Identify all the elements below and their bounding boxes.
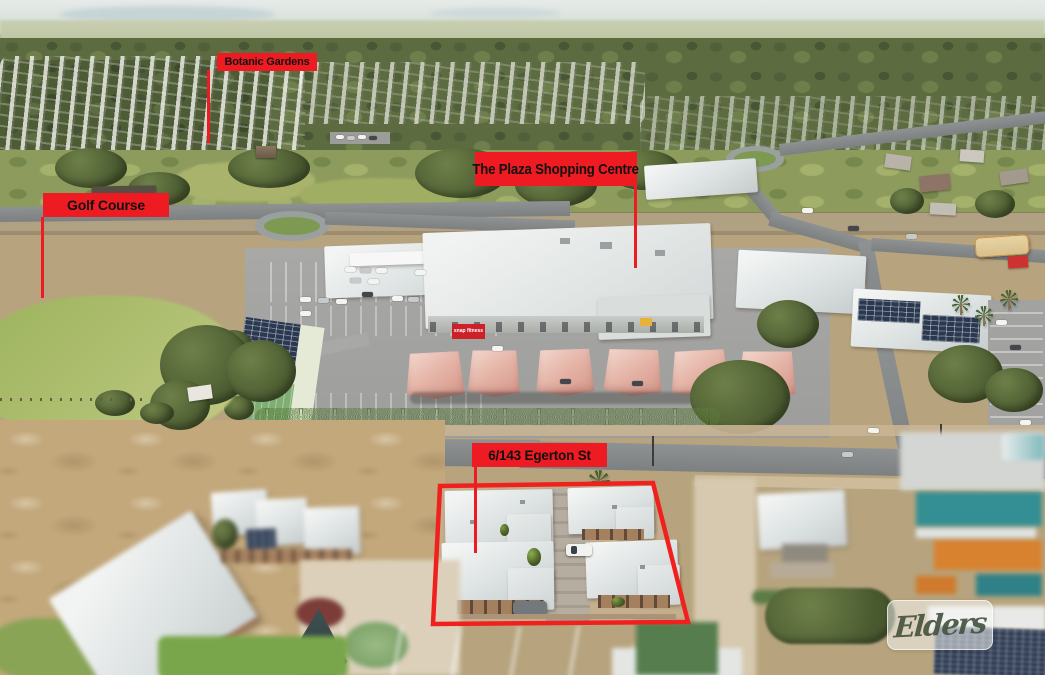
car (906, 234, 917, 239)
suburb-left (0, 56, 305, 158)
car (408, 297, 419, 302)
car (347, 136, 355, 140)
car (336, 299, 347, 304)
bush (95, 390, 135, 416)
neighbour-house (752, 488, 852, 600)
car (996, 320, 1007, 325)
solar-array (921, 315, 980, 344)
car (492, 346, 503, 351)
shed-roof (342, 626, 634, 675)
elders-brand-text: Elders (893, 606, 987, 645)
containers (916, 492, 1045, 602)
tree (757, 300, 819, 348)
container-teal (916, 492, 1042, 526)
tree (985, 368, 1043, 412)
property-outline (430, 478, 695, 630)
container-orange (934, 540, 1042, 570)
car (300, 297, 311, 302)
neighbour-roof (757, 490, 848, 551)
snap-fitness-sign: snap fitness (452, 324, 485, 339)
botanic-gardens-label: Botanic Gardens (217, 53, 317, 71)
car (360, 268, 371, 273)
snap-fitness-label: snap fitness (454, 329, 483, 335)
house-roof (960, 149, 985, 163)
bush (212, 519, 238, 549)
shade-sail (536, 348, 595, 396)
elders-watermark: Elders (887, 600, 993, 650)
bush (140, 402, 174, 424)
gardens-shelter (256, 146, 276, 158)
tree (890, 188, 924, 214)
palm-tree (952, 295, 970, 313)
palm-tree (975, 306, 993, 324)
golf-course-label: Golf Course (43, 193, 169, 217)
aerial-photo: snap fitness (0, 0, 1045, 675)
tree (226, 340, 296, 402)
house-roof (919, 173, 951, 192)
car (842, 452, 853, 457)
car (848, 226, 859, 231)
car (368, 279, 379, 284)
car (392, 296, 403, 301)
golf-course-leader (41, 217, 44, 298)
palm-tree (1000, 290, 1018, 308)
rooftop-unit (655, 250, 665, 256)
fuel-canopy (974, 234, 1029, 258)
suburb-mid (300, 62, 645, 124)
car (632, 381, 643, 386)
property-label: 6/143 Egerton St (472, 443, 607, 467)
car (318, 298, 329, 303)
plaza-text: The Plaza Shopping Centre (473, 161, 639, 178)
container-gap (916, 528, 1036, 538)
car (300, 311, 311, 316)
car (802, 208, 813, 213)
neighbour-wall (770, 562, 834, 578)
plaza-label: The Plaza Shopping Centre (475, 152, 637, 186)
container-teal2 (976, 574, 1042, 596)
solar-array (857, 298, 920, 323)
car (345, 267, 356, 272)
car (336, 135, 344, 139)
car (376, 268, 387, 273)
car (868, 428, 879, 433)
lake-small (430, 8, 560, 19)
cluster-solar (245, 528, 276, 550)
yellow-sign (640, 318, 652, 326)
hedge-trees (765, 588, 895, 644)
car (350, 278, 361, 283)
botanic-gardens-leader (207, 70, 210, 143)
car (369, 136, 377, 140)
fuel-store (1008, 255, 1029, 268)
shade-sail (468, 350, 521, 398)
house-roof (930, 202, 957, 215)
truck (1002, 434, 1044, 460)
light-pole (652, 436, 654, 466)
car (1010, 345, 1021, 350)
tree (55, 148, 127, 188)
fence-line (0, 398, 150, 401)
rooftop-unit (560, 238, 570, 244)
property-leader (474, 466, 477, 553)
golf-course-text: Golf Course (67, 197, 145, 213)
botanic-gardens-text: Botanic Gardens (224, 56, 309, 68)
lawn-bright (158, 636, 348, 675)
rooftop-unit (600, 242, 612, 249)
car (560, 379, 571, 384)
plaza-leader (634, 186, 637, 268)
shade-sail (603, 348, 663, 397)
car (415, 270, 426, 275)
property-text: 6/143 Egerton St (488, 448, 591, 463)
tree (975, 190, 1015, 218)
car (362, 292, 373, 297)
roundabout-west-centre (264, 217, 320, 235)
plaza-canopy (350, 251, 428, 267)
car (358, 135, 366, 139)
container-orange2 (916, 576, 956, 594)
